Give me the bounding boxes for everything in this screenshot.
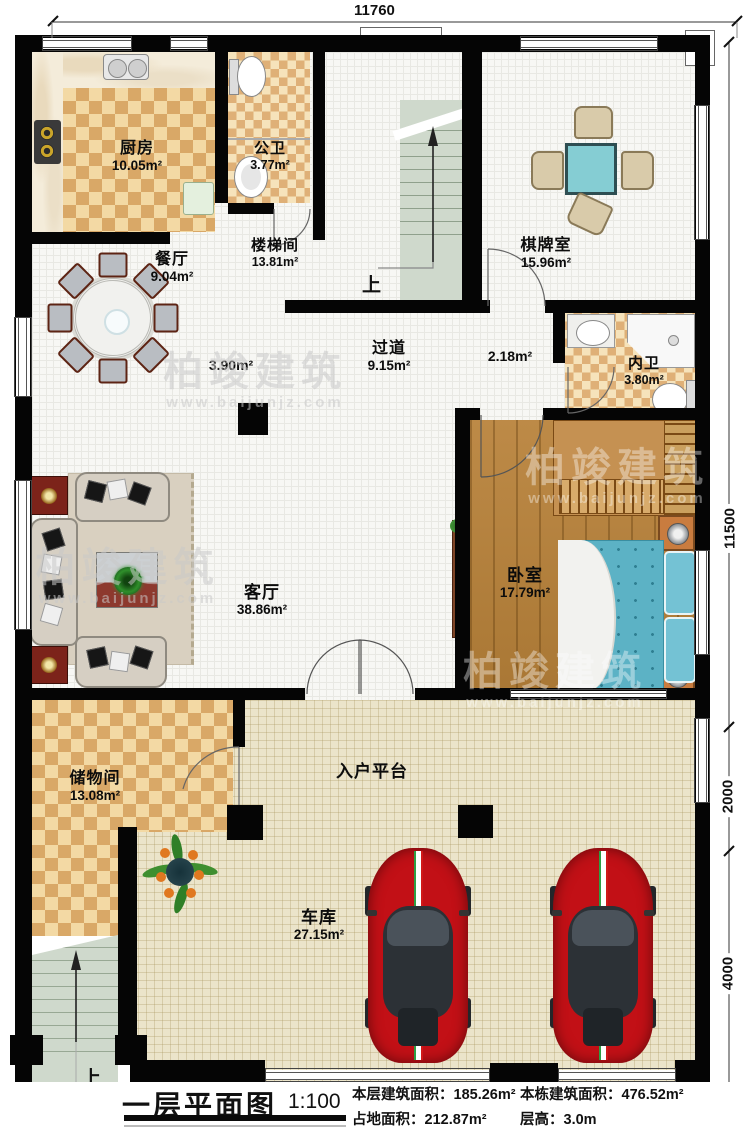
footprint-label: 占地面积： bbox=[352, 1112, 425, 1128]
car-mirror bbox=[459, 910, 469, 916]
room-label-chess: 棋牌室 15.96m² bbox=[520, 237, 571, 270]
car-cabin bbox=[568, 906, 638, 1018]
sink-bowl-left bbox=[108, 59, 127, 78]
car-mirror bbox=[552, 910, 562, 916]
sofa-pillow bbox=[109, 651, 130, 672]
hallway-subarea-2: 2.18m² bbox=[488, 349, 532, 365]
room-label-dining: 餐厅 9.04m² bbox=[151, 251, 194, 284]
dining-table-center bbox=[104, 309, 130, 335]
floor-storage-upper bbox=[32, 700, 233, 832]
vanity-sink bbox=[576, 320, 610, 346]
coffee-table-plant bbox=[114, 567, 142, 595]
floor-plan-canvas: 柏竣建筑 www.baijunjz.com 柏竣建筑 www.baijunjz.… bbox=[0, 0, 750, 1134]
toilet-bowl bbox=[237, 56, 266, 97]
bed bbox=[558, 540, 695, 690]
kitchen-stove bbox=[34, 120, 61, 164]
room-label-living: 客厅 38.86m² bbox=[237, 583, 287, 617]
room-label-garage: 车库 27.15m² bbox=[294, 908, 344, 942]
chess-table bbox=[565, 143, 617, 195]
dining-chair bbox=[154, 304, 179, 333]
car-right bbox=[553, 848, 653, 1063]
room-label-stairwell: 楼梯间 13.81m² bbox=[251, 238, 299, 269]
hallway-subarea-1: 3.90m² bbox=[209, 358, 253, 374]
garage-plant bbox=[148, 840, 212, 906]
shower-drain bbox=[668, 335, 679, 346]
dining-chair bbox=[99, 359, 128, 384]
plant-fruit bbox=[160, 848, 170, 858]
total-area-row: 本栋建筑面积：476.52m² bbox=[520, 1083, 684, 1108]
stats-column-1: 本层建筑面积：185.26m² 占地面积：212.87m² bbox=[352, 1083, 516, 1132]
wall-bedroom-left bbox=[455, 408, 470, 700]
total-area-value: 476.52m² bbox=[622, 1087, 684, 1103]
plant-pot bbox=[166, 858, 194, 886]
storey-height-row: 层高：3.0m bbox=[520, 1108, 684, 1133]
burner-2 bbox=[40, 144, 54, 158]
window-dining-left bbox=[14, 317, 32, 397]
car-engine-cover bbox=[398, 1008, 438, 1046]
dim-right-upper: 11500 bbox=[721, 504, 738, 553]
wall-kitchen-bath bbox=[215, 52, 228, 203]
kitchen-fridge bbox=[183, 182, 214, 215]
bed-pillow-1 bbox=[664, 551, 696, 615]
end-table-top bbox=[30, 476, 68, 515]
window-chess-right bbox=[694, 105, 710, 240]
storey-height-value: 3.0m bbox=[564, 1112, 597, 1128]
window-chess-top bbox=[520, 36, 658, 51]
burner-1 bbox=[40, 126, 54, 140]
kitchen-sink bbox=[103, 54, 149, 80]
room-label-kitchen: 厨房 10.05m² bbox=[112, 140, 162, 173]
dining-chair bbox=[99, 253, 128, 278]
column-platform bbox=[458, 805, 493, 838]
wall-living-bottom-b bbox=[415, 688, 455, 700]
title-underline-2 bbox=[124, 1125, 346, 1127]
garage-door-right bbox=[558, 1068, 676, 1082]
window-publicbath-top bbox=[170, 36, 208, 51]
plant-fruit bbox=[156, 872, 166, 882]
room-label-hallway: 过道 9.15m² bbox=[368, 340, 411, 373]
dim-right-mid: 2000 bbox=[720, 776, 737, 817]
car-cabin bbox=[383, 906, 453, 1018]
column-storage-corner bbox=[227, 805, 263, 840]
window-bedroom-bottom bbox=[510, 689, 667, 699]
column-entrystair-left bbox=[10, 1035, 43, 1065]
dim-top: 11760 bbox=[350, 2, 399, 19]
floor-storage-lower bbox=[32, 832, 118, 936]
plant-fruit bbox=[164, 888, 174, 898]
car-windshield bbox=[572, 910, 634, 946]
closet-shelf-column bbox=[664, 421, 696, 515]
window-living-left bbox=[14, 480, 32, 630]
plant-fruit bbox=[194, 870, 204, 880]
wall-living-bottom-a bbox=[32, 688, 305, 700]
column-entrystair-right bbox=[115, 1035, 147, 1065]
bed-pillow-2 bbox=[664, 617, 696, 683]
wall-chess-left bbox=[462, 35, 482, 310]
car-windshield bbox=[387, 910, 449, 946]
floor-area-value: 185.26m² bbox=[454, 1087, 516, 1103]
car-left bbox=[368, 848, 468, 1063]
wall-storage-right bbox=[233, 700, 245, 747]
end-table-bottom bbox=[30, 646, 68, 684]
wall-stairwell-left bbox=[313, 52, 325, 240]
sofa-pillow bbox=[43, 579, 64, 600]
chess-chair bbox=[531, 151, 564, 190]
sink-bowl-right bbox=[128, 59, 147, 78]
plan-scale: 1:100 bbox=[288, 1090, 341, 1114]
wall-publicbath-bottom bbox=[228, 203, 274, 214]
wall-storage-inner bbox=[118, 827, 137, 1062]
wall-kitchen-bottom bbox=[32, 232, 170, 244]
wall-innerbath-left bbox=[553, 313, 565, 363]
footprint-value: 212.87m² bbox=[425, 1112, 487, 1128]
chess-chair bbox=[574, 106, 613, 139]
wall-chess-bottom-a bbox=[462, 300, 490, 313]
title-underline bbox=[124, 1115, 346, 1121]
car-mirror bbox=[367, 910, 377, 916]
plant-fruit bbox=[186, 888, 196, 898]
stats-column-2: 本栋建筑面积：476.52m² 层高：3.0m bbox=[520, 1083, 684, 1132]
floor-area-label: 本层建筑面积： bbox=[352, 1087, 454, 1103]
room-label-storage: 储物间 13.08m² bbox=[69, 770, 120, 803]
room-label-bedroom: 卧室 17.79m² bbox=[500, 566, 550, 600]
column-living bbox=[238, 403, 268, 435]
closet-hanger-rail bbox=[559, 479, 664, 514]
car-engine-cover bbox=[583, 1008, 623, 1046]
room-label-inner-bath: 内卫 3.80m² bbox=[624, 356, 664, 387]
room-label-platform: 入户平台 bbox=[336, 762, 408, 781]
window-bedroom-right bbox=[694, 550, 710, 655]
wall-bedroom-top-b bbox=[543, 408, 695, 420]
sofa-pillow bbox=[40, 553, 62, 575]
wall-chess-bottom-b bbox=[545, 300, 695, 313]
coffee-table bbox=[96, 552, 158, 608]
window-kitchen-top bbox=[42, 36, 132, 51]
public-bath-toilet bbox=[229, 56, 265, 96]
room-label-public-bath: 公卫 3.77m² bbox=[250, 141, 290, 172]
chess-chair bbox=[621, 151, 654, 190]
wall-hall-top bbox=[285, 300, 490, 313]
storey-height-label: 层高： bbox=[520, 1112, 564, 1128]
floor-area-row: 本层建筑面积：185.26m² bbox=[352, 1083, 516, 1108]
entry-stairs bbox=[32, 935, 118, 1060]
bedroom-closet bbox=[553, 420, 695, 516]
garage-door-left bbox=[265, 1068, 490, 1082]
car-mirror bbox=[644, 910, 654, 916]
inner-bath-vanity bbox=[567, 314, 615, 348]
sofa-pillow bbox=[106, 478, 128, 500]
dining-chair bbox=[48, 304, 73, 333]
sofa-pillow bbox=[86, 646, 109, 669]
total-area-label: 本栋建筑面积： bbox=[520, 1087, 622, 1103]
dim-right-lower: 4000 bbox=[720, 953, 737, 994]
title-block: 一层平面图 1:100 本层建筑面积：185.26m² 占地面积：212.87m… bbox=[0, 1082, 750, 1134]
stairwell-up-label: 上 bbox=[362, 270, 381, 297]
plant-fruit bbox=[188, 850, 198, 860]
footprint-row: 占地面积：212.87m² bbox=[352, 1108, 516, 1133]
window-platform-right bbox=[694, 718, 710, 803]
